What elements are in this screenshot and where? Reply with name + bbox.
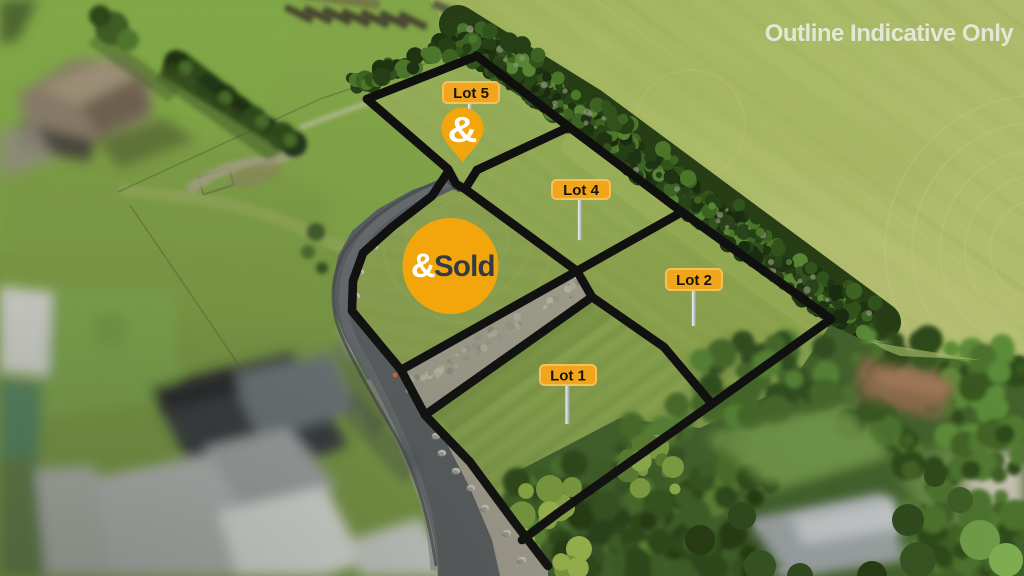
svg-text:&: &: [411, 247, 436, 285]
svg-text:&: &: [448, 109, 478, 150]
svg-text:Outline Indicative Only: Outline Indicative Only: [765, 20, 1015, 47]
svg-text:Lot 5: Lot 5: [453, 85, 489, 102]
svg-text:Sold: Sold: [434, 250, 495, 283]
svg-text:Lot 4: Lot 4: [563, 182, 599, 199]
svg-text:Lot 2: Lot 2: [676, 272, 712, 289]
svg-text:Lot 1: Lot 1: [550, 367, 586, 384]
